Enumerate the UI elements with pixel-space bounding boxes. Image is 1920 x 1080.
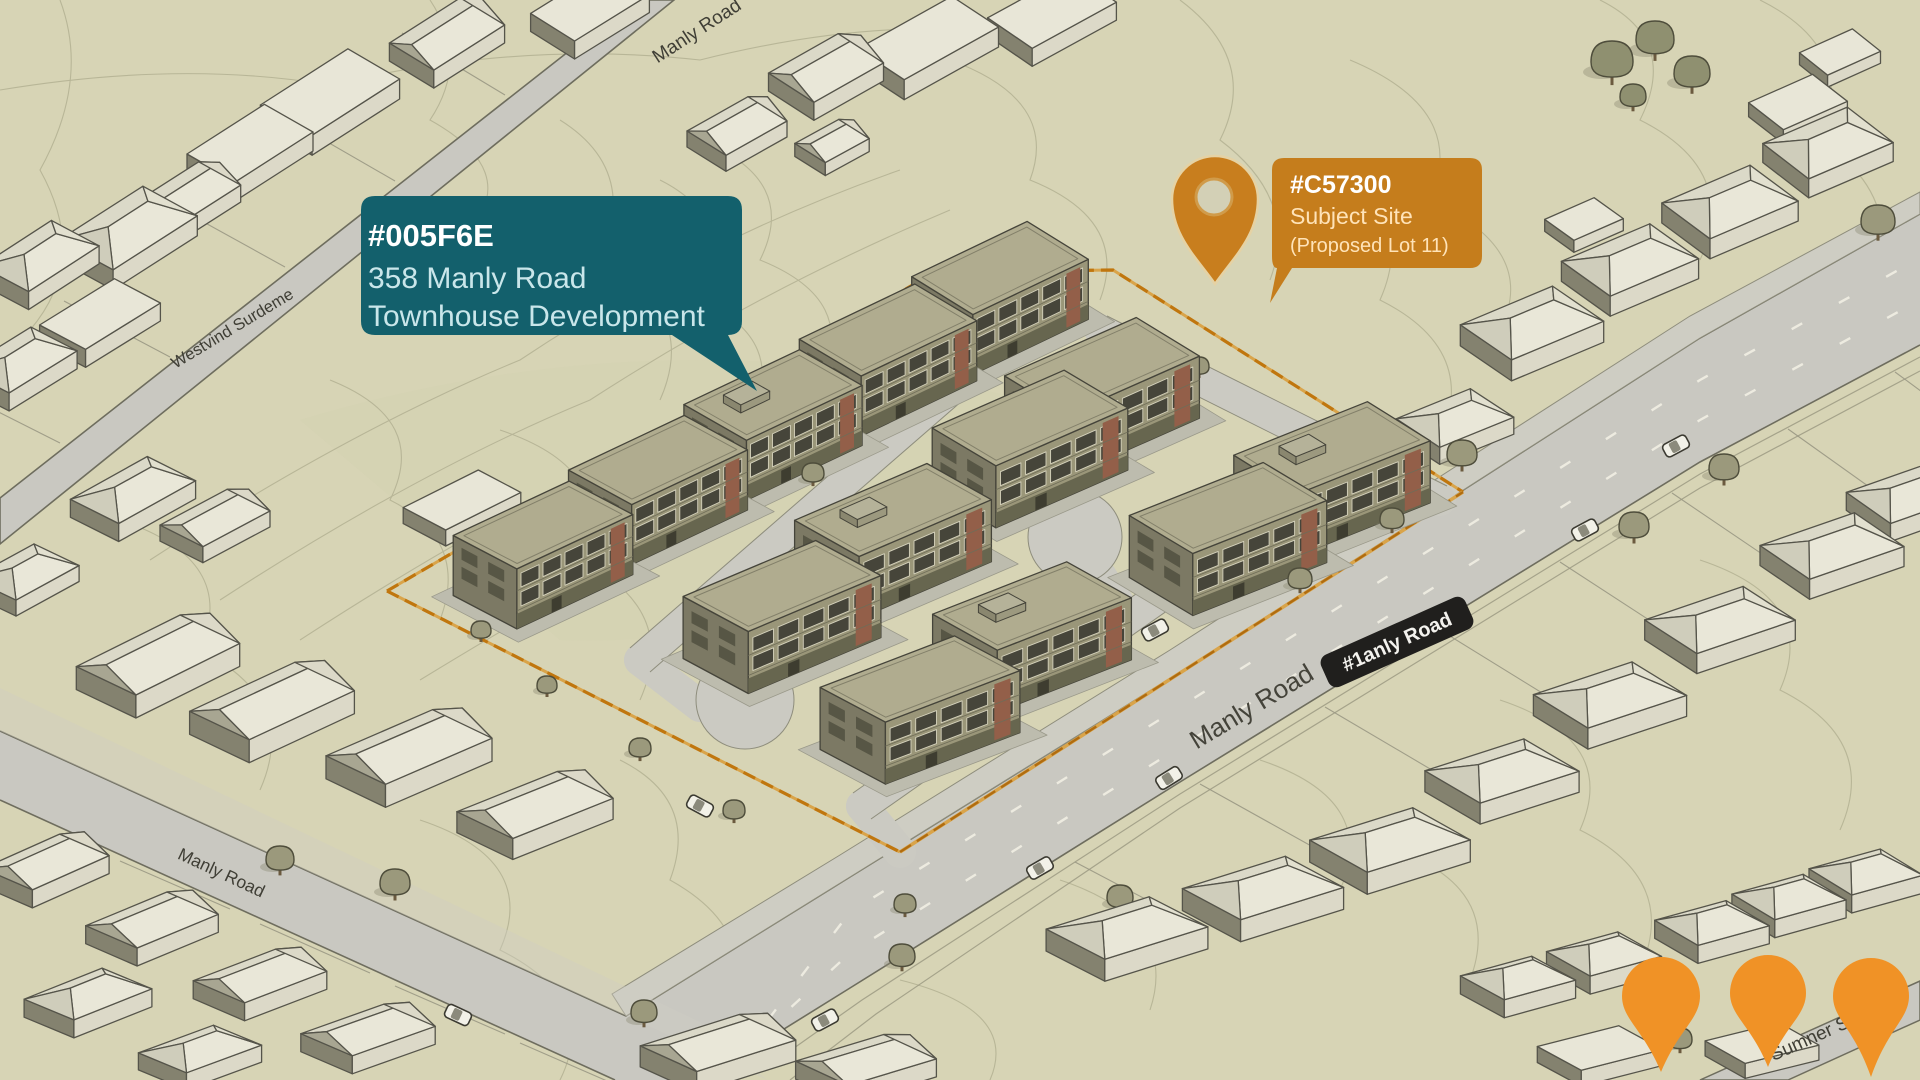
svg-text:Townhouse Development: Townhouse Development — [368, 300, 706, 333]
svg-text:358 Manly Road: 358 Manly Road — [368, 262, 586, 295]
svg-text:#005F6E: #005F6E — [368, 218, 494, 253]
svg-text:(Proposed Lot 11): (Proposed Lot 11) — [1290, 235, 1449, 257]
svg-text:#C57300: #C57300 — [1290, 171, 1391, 199]
svg-text:Subject Site: Subject Site — [1290, 203, 1413, 229]
